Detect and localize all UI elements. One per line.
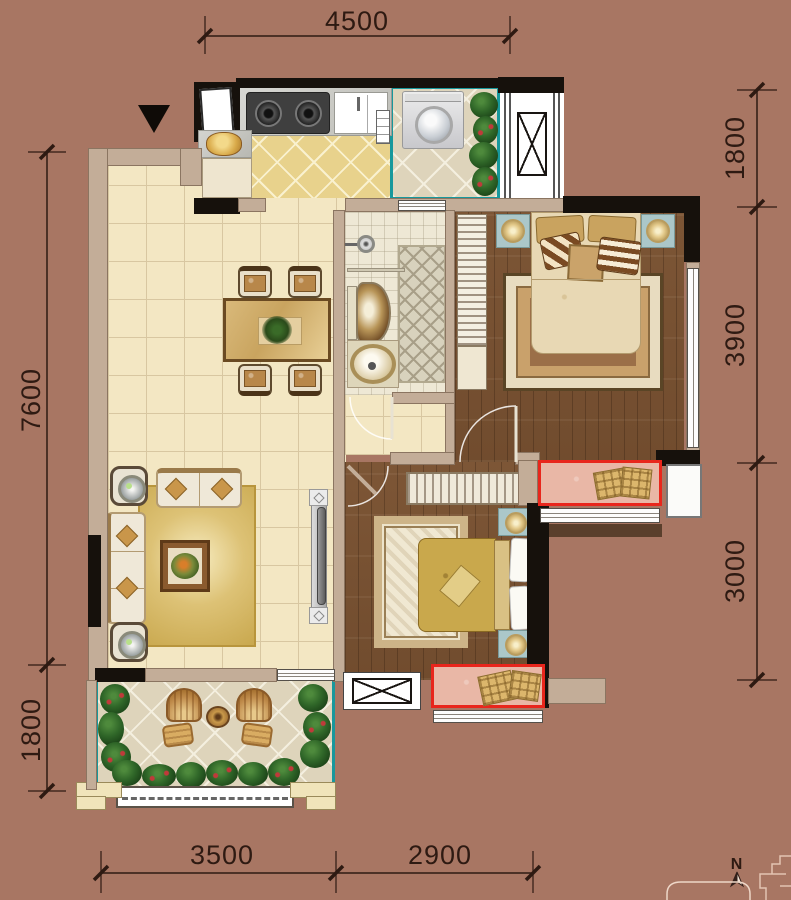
floor-speaker-icon — [110, 466, 148, 506]
wall — [445, 210, 455, 455]
chair-cushion — [294, 370, 316, 387]
second-bay-window — [431, 664, 545, 708]
balcony-pillar — [306, 796, 336, 810]
sofa-pillow — [116, 525, 139, 548]
table-plant-icon — [171, 553, 199, 579]
bay-cushion-pillow — [620, 467, 653, 500]
dim-label-left-2: 1800 — [16, 698, 46, 762]
food-plate-icon — [206, 132, 242, 156]
master-wardrobe-bench — [457, 346, 487, 390]
coffee-table-icon — [160, 540, 210, 592]
elevator-icon — [517, 112, 547, 176]
plant-icon — [298, 684, 328, 712]
plant-icon — [469, 142, 498, 169]
cap-diamond — [313, 492, 324, 503]
wall — [86, 680, 97, 790]
speaker-dot — [126, 483, 132, 489]
tv-cabinet-cap — [309, 607, 328, 624]
cap-diamond — [313, 610, 324, 621]
floor-speaker-icon — [110, 622, 148, 662]
plant-icon — [142, 764, 176, 788]
washer-drum-icon — [415, 106, 453, 144]
plant-icon — [176, 762, 206, 788]
plant-icon — [100, 684, 130, 714]
balcony-slider-window — [277, 669, 335, 681]
faucet-icon — [368, 362, 376, 370]
elevator-rail — [553, 92, 555, 198]
chair-cushion — [294, 275, 316, 292]
bathroom-shelf — [347, 268, 405, 272]
dimension-left — [28, 145, 66, 798]
plant-icon — [470, 92, 498, 118]
nightstand-lamp-icon — [505, 634, 527, 656]
elevator-rail — [504, 92, 506, 198]
burner-icon — [255, 100, 282, 127]
washing-machine-icon — [402, 91, 464, 149]
washbasin-icon — [350, 344, 396, 384]
wall — [392, 392, 455, 404]
wall — [238, 198, 266, 212]
speaker-dot — [126, 639, 132, 645]
wicker-chair-icon — [236, 688, 272, 722]
wicker-chair-icon — [166, 688, 202, 722]
sofa-icon — [156, 468, 242, 508]
speaker-cone — [118, 475, 146, 503]
wall — [88, 535, 101, 627]
second-wardrobe — [406, 472, 526, 505]
sink-divider — [367, 95, 368, 133]
sofa-cushion-divider — [199, 473, 200, 506]
master-bay-glazing — [540, 508, 660, 523]
nightstand — [641, 214, 675, 248]
wall — [390, 452, 455, 465]
faucet-icon — [357, 97, 360, 111]
wall — [518, 460, 538, 506]
bed-duvet — [418, 538, 496, 632]
elevator-rail — [509, 92, 511, 198]
sofa-pillow — [165, 478, 188, 501]
wall — [345, 198, 565, 212]
plant-icon — [473, 116, 498, 144]
plant-icon — [472, 167, 498, 196]
master-wardrobe — [457, 214, 487, 346]
wicker-footstool — [162, 722, 195, 748]
dining-chair — [238, 266, 272, 298]
hallway-floor — [345, 395, 445, 455]
dim-label-right-1: 1800 — [720, 116, 750, 180]
north-arrow-icon: N — [731, 856, 744, 886]
nightstand — [496, 214, 530, 248]
kitchen-base-cabinet — [202, 158, 252, 198]
sofa-icon — [106, 512, 146, 624]
dim-label-bottom-2: 2900 — [408, 840, 472, 870]
plant-icon — [98, 712, 124, 746]
stove-icon — [246, 92, 330, 134]
dining-chair — [288, 364, 322, 396]
toilet-bowl — [356, 282, 391, 344]
chair-cushion — [244, 370, 266, 387]
shower-head-icon — [357, 235, 375, 253]
duct-shaft-icon — [352, 678, 412, 704]
nightstand-lamp-icon — [501, 219, 525, 243]
washer-panel — [405, 94, 461, 102]
dining-table-icon — [223, 298, 331, 362]
balcony-table-icon — [206, 706, 230, 728]
balcony-pillar — [76, 796, 106, 810]
wall — [548, 678, 606, 704]
dimension-right — [737, 83, 777, 687]
dining-chair — [238, 364, 272, 396]
sofa-cushion-divider — [111, 551, 144, 552]
entrance-arrow-icon — [138, 105, 170, 133]
wall — [498, 77, 564, 93]
elevator-rail — [558, 92, 560, 198]
sofa-pillow — [211, 478, 234, 501]
burner-icon — [295, 100, 322, 127]
wall — [194, 198, 240, 214]
site-outline-arc — [667, 882, 750, 900]
dining-chair — [288, 266, 322, 298]
duvet-fold — [439, 565, 481, 608]
dim-label-bottom-1: 3500 — [190, 840, 254, 870]
plant-icon — [238, 762, 268, 786]
wicker-footstool — [241, 722, 274, 748]
wall — [684, 196, 700, 262]
bay-cushion-pillow — [508, 670, 542, 702]
dimension-bottom — [94, 851, 540, 893]
railing-icon — [116, 786, 294, 808]
master-window — [687, 268, 699, 448]
kitchen-door-frame — [376, 110, 390, 144]
shower-mat — [398, 245, 446, 383]
nightstand-lamp-icon — [646, 219, 670, 243]
bathroom-window — [398, 200, 446, 211]
railing-dashes — [122, 797, 288, 800]
tv-cabinet-cap — [309, 489, 328, 506]
floor-plan-canvas: 4500 1800 3900 3000 7600 1800 — [0, 0, 791, 900]
exterior-column — [666, 464, 702, 518]
dim-label-right-2: 3900 — [720, 303, 750, 367]
dim-label-left-1: 7600 — [16, 368, 46, 432]
toilet-icon — [347, 282, 391, 344]
wall — [563, 196, 700, 213]
duvet-fold — [532, 279, 640, 280]
wall — [236, 78, 498, 88]
tv-icon — [317, 507, 326, 605]
single-bed-icon — [418, 534, 536, 636]
striped-accent-pillow — [596, 236, 642, 276]
speaker-cone — [118, 631, 146, 659]
table-plant-icon — [262, 316, 292, 344]
plant-icon — [303, 712, 331, 742]
chair-cushion — [244, 275, 266, 292]
sofa-pillow — [116, 577, 139, 600]
bed-blanket — [494, 540, 510, 630]
wall — [95, 668, 145, 682]
kitchen-floor — [238, 134, 390, 198]
master-bay-window — [538, 460, 662, 506]
wall — [180, 148, 202, 186]
nightstand-lamp-icon — [505, 512, 527, 534]
double-bed-icon — [531, 212, 641, 354]
north-label: N — [731, 856, 744, 873]
dim-label-top: 4500 — [325, 6, 389, 36]
wall — [333, 210, 345, 682]
plant-icon — [206, 760, 238, 786]
dimension-top — [198, 16, 517, 54]
dim-label-right-3: 3000 — [720, 539, 750, 603]
second-bay-glazing — [433, 710, 543, 723]
wall — [145, 668, 277, 682]
site-plan-sketch — [760, 856, 791, 900]
exterior-sill-shadow — [544, 524, 662, 537]
plant-icon — [300, 740, 330, 768]
